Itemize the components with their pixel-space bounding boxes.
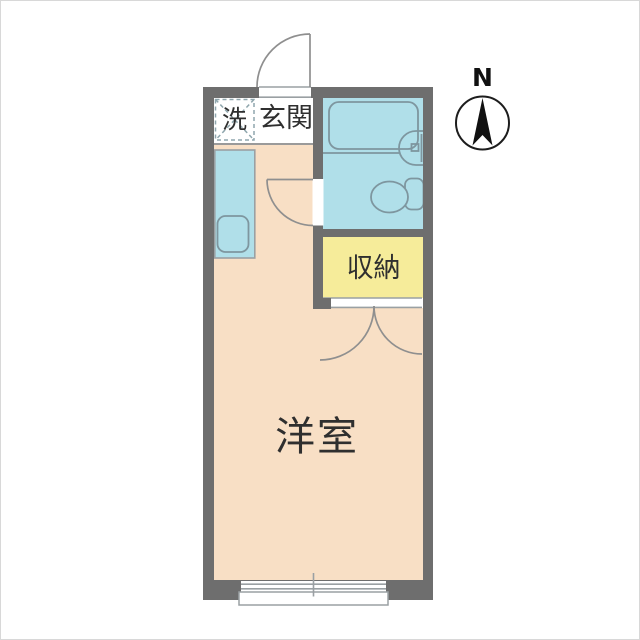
compass: N [456,63,509,150]
closet-label: 収納 [347,253,401,284]
wall-right [423,87,433,600]
toilet-bowl [371,182,408,213]
wall-closet-corner [313,298,331,309]
wall-top-right [311,87,433,98]
entrance-label: 玄関 [259,103,313,134]
entrance-doorway [259,86,311,98]
main-room-label: 洋室 [275,414,359,460]
closet-door-track [323,298,423,308]
entrance-door-swing-arc [257,34,310,87]
wall-bath-bottom [313,229,433,237]
floorplan-canvas: N 洋室 玄関 収納 洗 [1,1,639,639]
laundry-label: 洗 [222,105,247,134]
floorplan-image: N 洋室 玄関 収納 洗 [0,0,640,640]
wall-left [203,87,214,600]
wall-partition-upper [313,98,323,179]
bathroom-doorway [313,179,324,226]
compass-north-label: N [472,63,493,92]
